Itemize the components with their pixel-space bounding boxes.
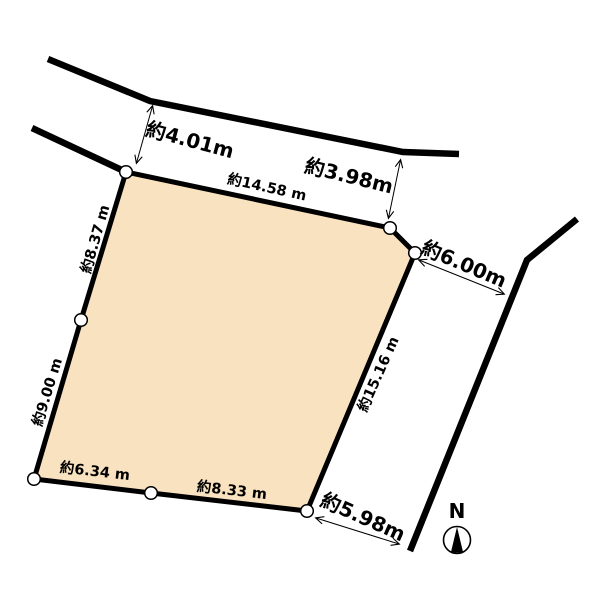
vertex-top-right	[384, 222, 397, 235]
road-north	[48, 59, 459, 154]
label-north-road-width: 約4.01m	[143, 117, 236, 164]
plot-diagram: 約4.01m 約3.98m 約6.00m 約5.98m 約14.58 m 約8.…	[0, 0, 600, 600]
label-northeast-gap: 約3.98m	[302, 153, 395, 198]
vertex-bottom-right	[301, 505, 314, 518]
vertex-top-left	[120, 166, 133, 179]
north-label: N	[449, 499, 466, 523]
plot-diagram-canvas: 約4.01m 約3.98m 約6.00m 約5.98m 約14.58 m 約8.…	[0, 0, 600, 600]
land-plot-boundary	[34, 172, 415, 511]
vertex-bottom-middle	[145, 487, 158, 500]
vertex-left-middle	[75, 314, 88, 327]
road-northwest-branch	[32, 128, 126, 172]
label-east-gap-upper: 約6.00m	[418, 235, 510, 292]
vertex-bottom-left	[28, 473, 41, 486]
label-east-gap-lower: 約5.98m	[317, 488, 409, 547]
north-compass: N	[444, 499, 471, 554]
